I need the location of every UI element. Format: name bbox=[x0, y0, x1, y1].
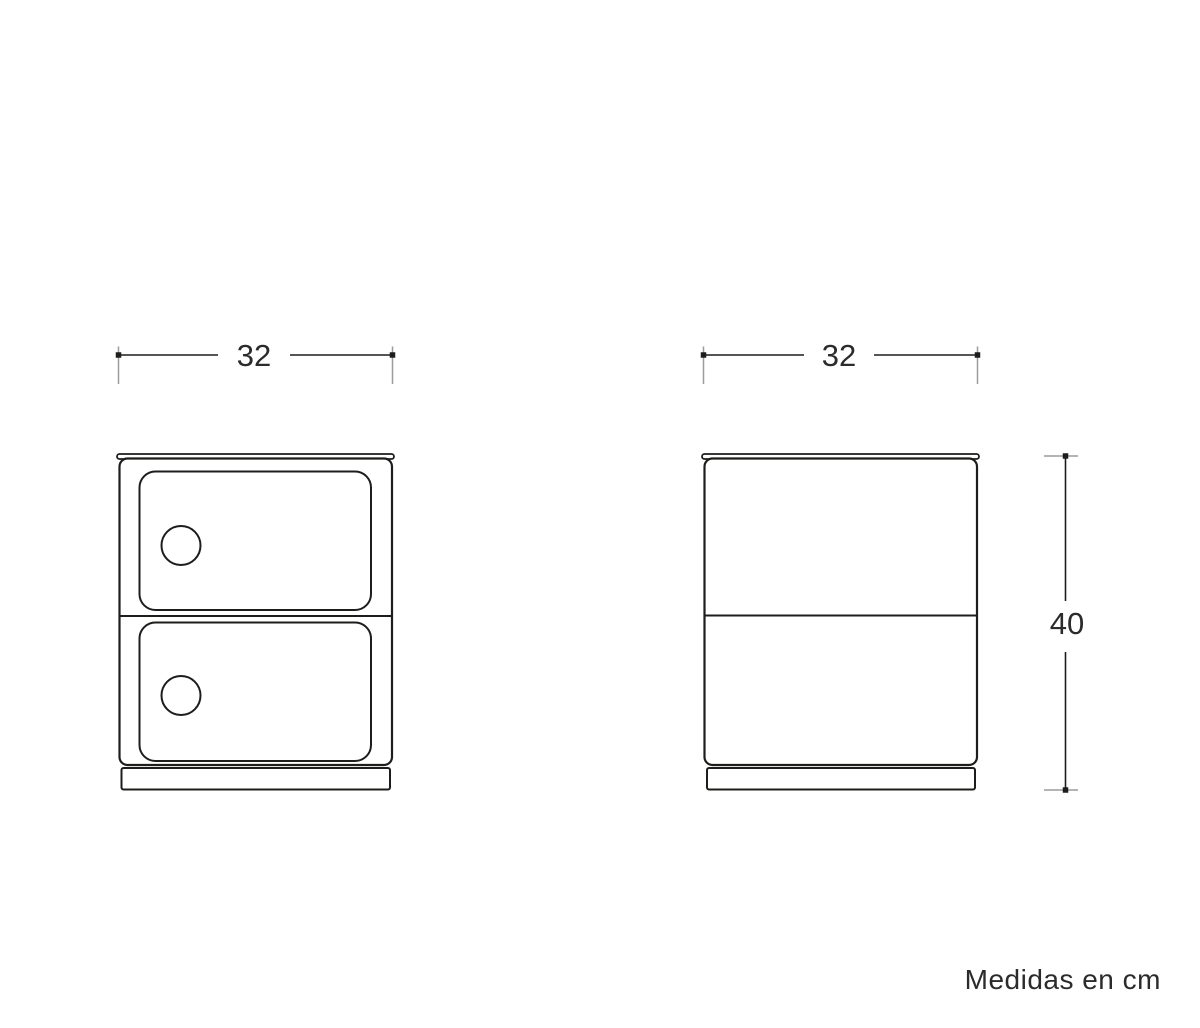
side-body-outline bbox=[705, 459, 978, 766]
height-label: 40 bbox=[1050, 606, 1084, 641]
dimension-height: 40 bbox=[1044, 453, 1084, 793]
front-base-plinth bbox=[122, 768, 391, 790]
endpoint-dot-top bbox=[1063, 453, 1069, 459]
dimension-front-width: 32 bbox=[116, 338, 396, 384]
dimension-side-width: 32 bbox=[701, 338, 981, 384]
side-width-label: 32 bbox=[822, 338, 856, 373]
side-view bbox=[702, 454, 979, 790]
endpoint-dot-bottom bbox=[1063, 787, 1069, 793]
endpoint-dot-right bbox=[975, 352, 981, 358]
units-note: Medidas en cm bbox=[965, 964, 1161, 995]
front-body-outline bbox=[120, 459, 393, 766]
front-view bbox=[117, 454, 394, 790]
technical-drawing-page: 32 32 40 Medidas en cm bbox=[0, 0, 1200, 1028]
front-width-label: 32 bbox=[237, 338, 271, 373]
side-base-plinth bbox=[707, 768, 975, 790]
endpoint-dot-left bbox=[116, 352, 122, 358]
endpoint-dot-left bbox=[701, 352, 707, 358]
endpoint-dot-right bbox=[390, 352, 396, 358]
nightstand-dimension-diagram: 32 32 40 Medidas en cm bbox=[0, 0, 1200, 1028]
